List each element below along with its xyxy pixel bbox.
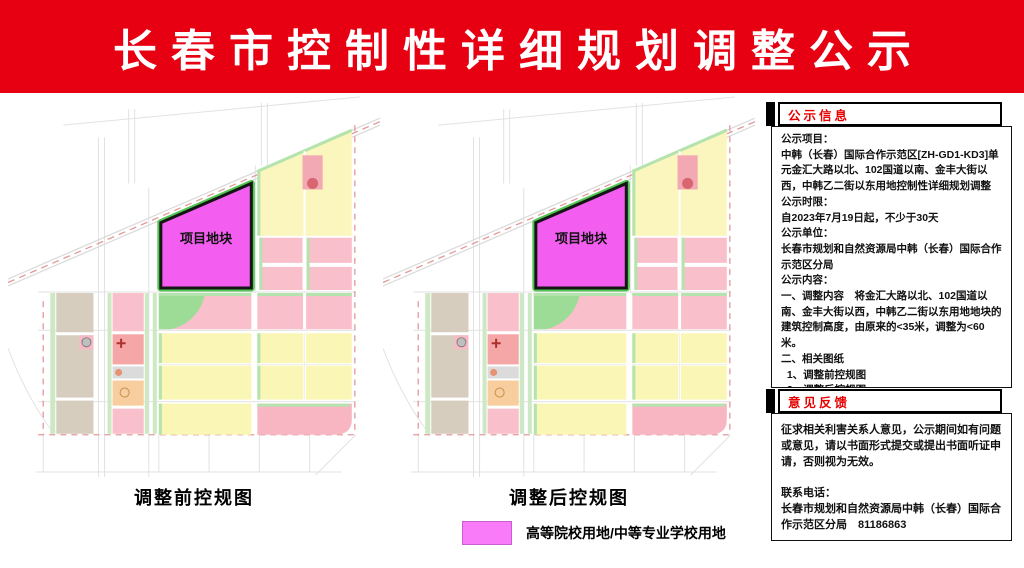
before-map [8, 95, 380, 479]
text-line: 一、调整内容 将金汇大路以北、102国道以南、金丰大街以西，中韩乙二街以东用地地… [781, 289, 1002, 352]
info-panel-header-label: 公示信息 [788, 105, 850, 124]
feedback-paragraphs: 征求相关利害关系人意见，公示期间如有问题或意见，请以书面形式提交或提出书面听证申… [781, 422, 1002, 470]
text-line: 公示时限： [781, 195, 1002, 211]
contact-label: 联系电话： [781, 485, 1002, 501]
text-line: 自2023年7月19日起，不少于30天 [781, 211, 1002, 227]
text-line: 公示单位： [781, 226, 1002, 242]
feedback-panel-header-label: 意见反馈 [788, 392, 850, 411]
info-panel-header: 公示信息 [778, 102, 1002, 126]
text-line: 长春市规划和自然资源局中韩（长春）国际合作示范区分局 [781, 242, 1002, 273]
text-line: 中韩（长春）国际合作示范区[ZH-GD1-KD3]单元金汇大路以北、102国道以… [781, 148, 1002, 195]
text-line: 公示内容： [781, 273, 1002, 289]
info-header-accent [766, 102, 775, 126]
legend-color-swatch [462, 521, 512, 545]
contact-value: 长春市规划和自然资源局中韩（长春）国际合作示范区分局 81186863 [781, 501, 1002, 533]
legend-label: 高等院校用地/中等专业学校用地 [526, 523, 726, 543]
page-title: 长春市控制性详细规划调整公示 [99, 15, 925, 79]
before-map-caption: 调整前控规图 [8, 484, 380, 510]
notice-page: 长春市控制性详细规划调整公示 [0, 0, 1024, 568]
before-map-figure: 调整前控规图 [8, 95, 380, 510]
feedback-header-accent [766, 389, 775, 413]
feedback-panel-content: 征求相关利害关系人意见，公示期间如有问题或意见，请以书面形式提交或提出书面听证申… [771, 413, 1012, 541]
text-line: 1、调整前控规图 [781, 368, 1002, 384]
legend: 高等院校用地/中等专业学校用地 [462, 521, 726, 545]
text-line: 公示项目： [781, 132, 1002, 148]
after-map-caption: 调整后控规图 [383, 484, 755, 510]
info-panel-content: 公示项目：中韩（长春）国际合作示范区[ZH-GD1-KD3]单元金汇大路以北、1… [771, 126, 1012, 388]
banner: 长春市控制性详细规划调整公示 [0, 0, 1024, 93]
text-line: 2、调整后控规图 [781, 383, 1002, 388]
after-map [383, 95, 755, 479]
text-line: 征求相关利害关系人意见，公示期间如有问题或意见，请以书面形式提交或提出书面听证申… [781, 422, 1002, 470]
feedback-panel-header: 意见反馈 [778, 389, 1002, 413]
after-map-figure: 调整后控规图 [383, 95, 755, 510]
spacer [781, 470, 1002, 485]
text-line: 二、相关图纸 [781, 352, 1002, 368]
